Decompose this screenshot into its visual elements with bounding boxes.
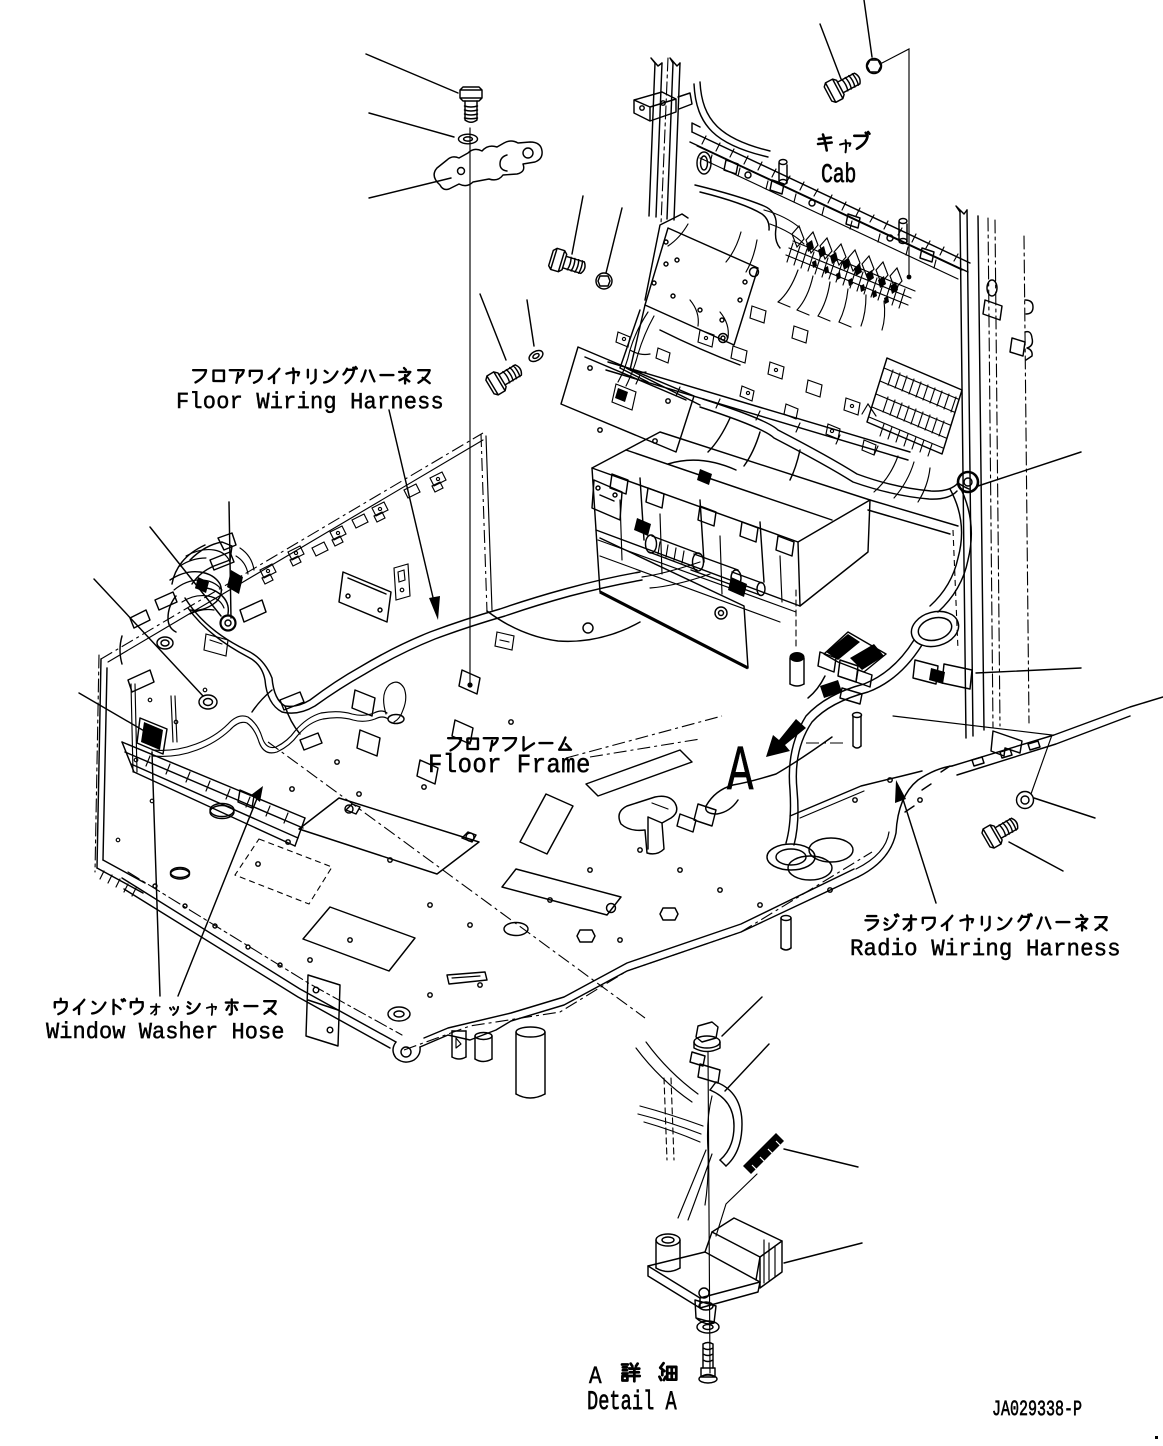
svg-text:Cab: Cab: [821, 160, 856, 191]
svg-text:Detail A: Detail A: [587, 1387, 677, 1417]
svg-text:JA029338-P: JA029338-P: [992, 1396, 1082, 1422]
svg-text:Radio Wiring Harness: Radio Wiring Harness: [850, 936, 1121, 963]
svg-text:A: A: [727, 735, 753, 809]
svg-text:Window Washer Hose: Window Washer Hose: [46, 1019, 284, 1046]
svg-text:Floor Frame: Floor Frame: [428, 750, 591, 781]
svg-text:Floor Wiring Harness: Floor Wiring Harness: [176, 389, 444, 416]
